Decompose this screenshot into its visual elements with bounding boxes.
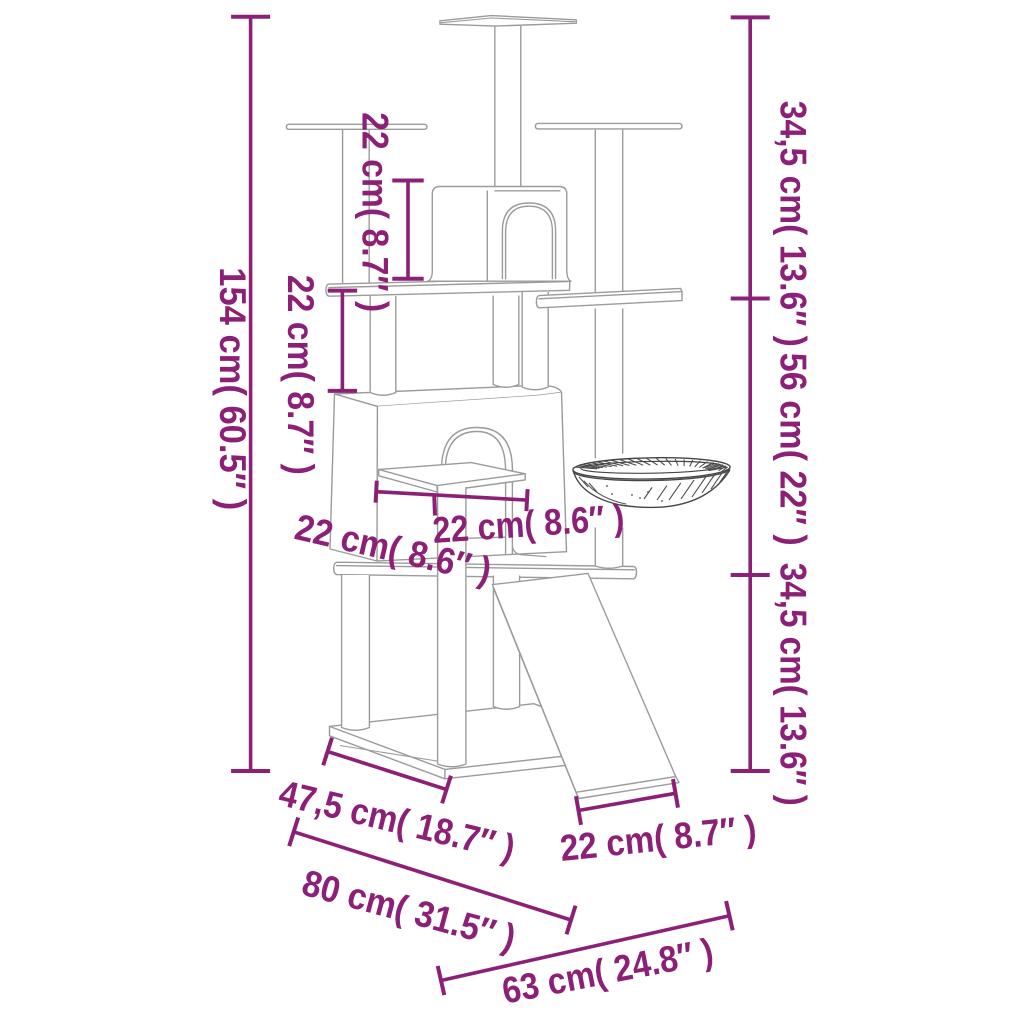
svg-text:22 cm( 8.7″ ): 22 cm( 8.7″ ) <box>280 275 321 475</box>
svg-text:154 cm( 60.5″ ): 154 cm( 60.5″ ) <box>212 267 253 510</box>
svg-text:34,5 cm( 13.6″ ): 34,5 cm( 13.6″ ) <box>773 563 814 806</box>
svg-text:56 cm( 22″ ): 56 cm( 22″ ) <box>773 353 814 546</box>
svg-text:34,5 cm( 13.6″ ): 34,5 cm( 13.6″ ) <box>773 101 814 347</box>
svg-text:22 cm( 8.7″ ): 22 cm( 8.7″ ) <box>355 112 396 312</box>
